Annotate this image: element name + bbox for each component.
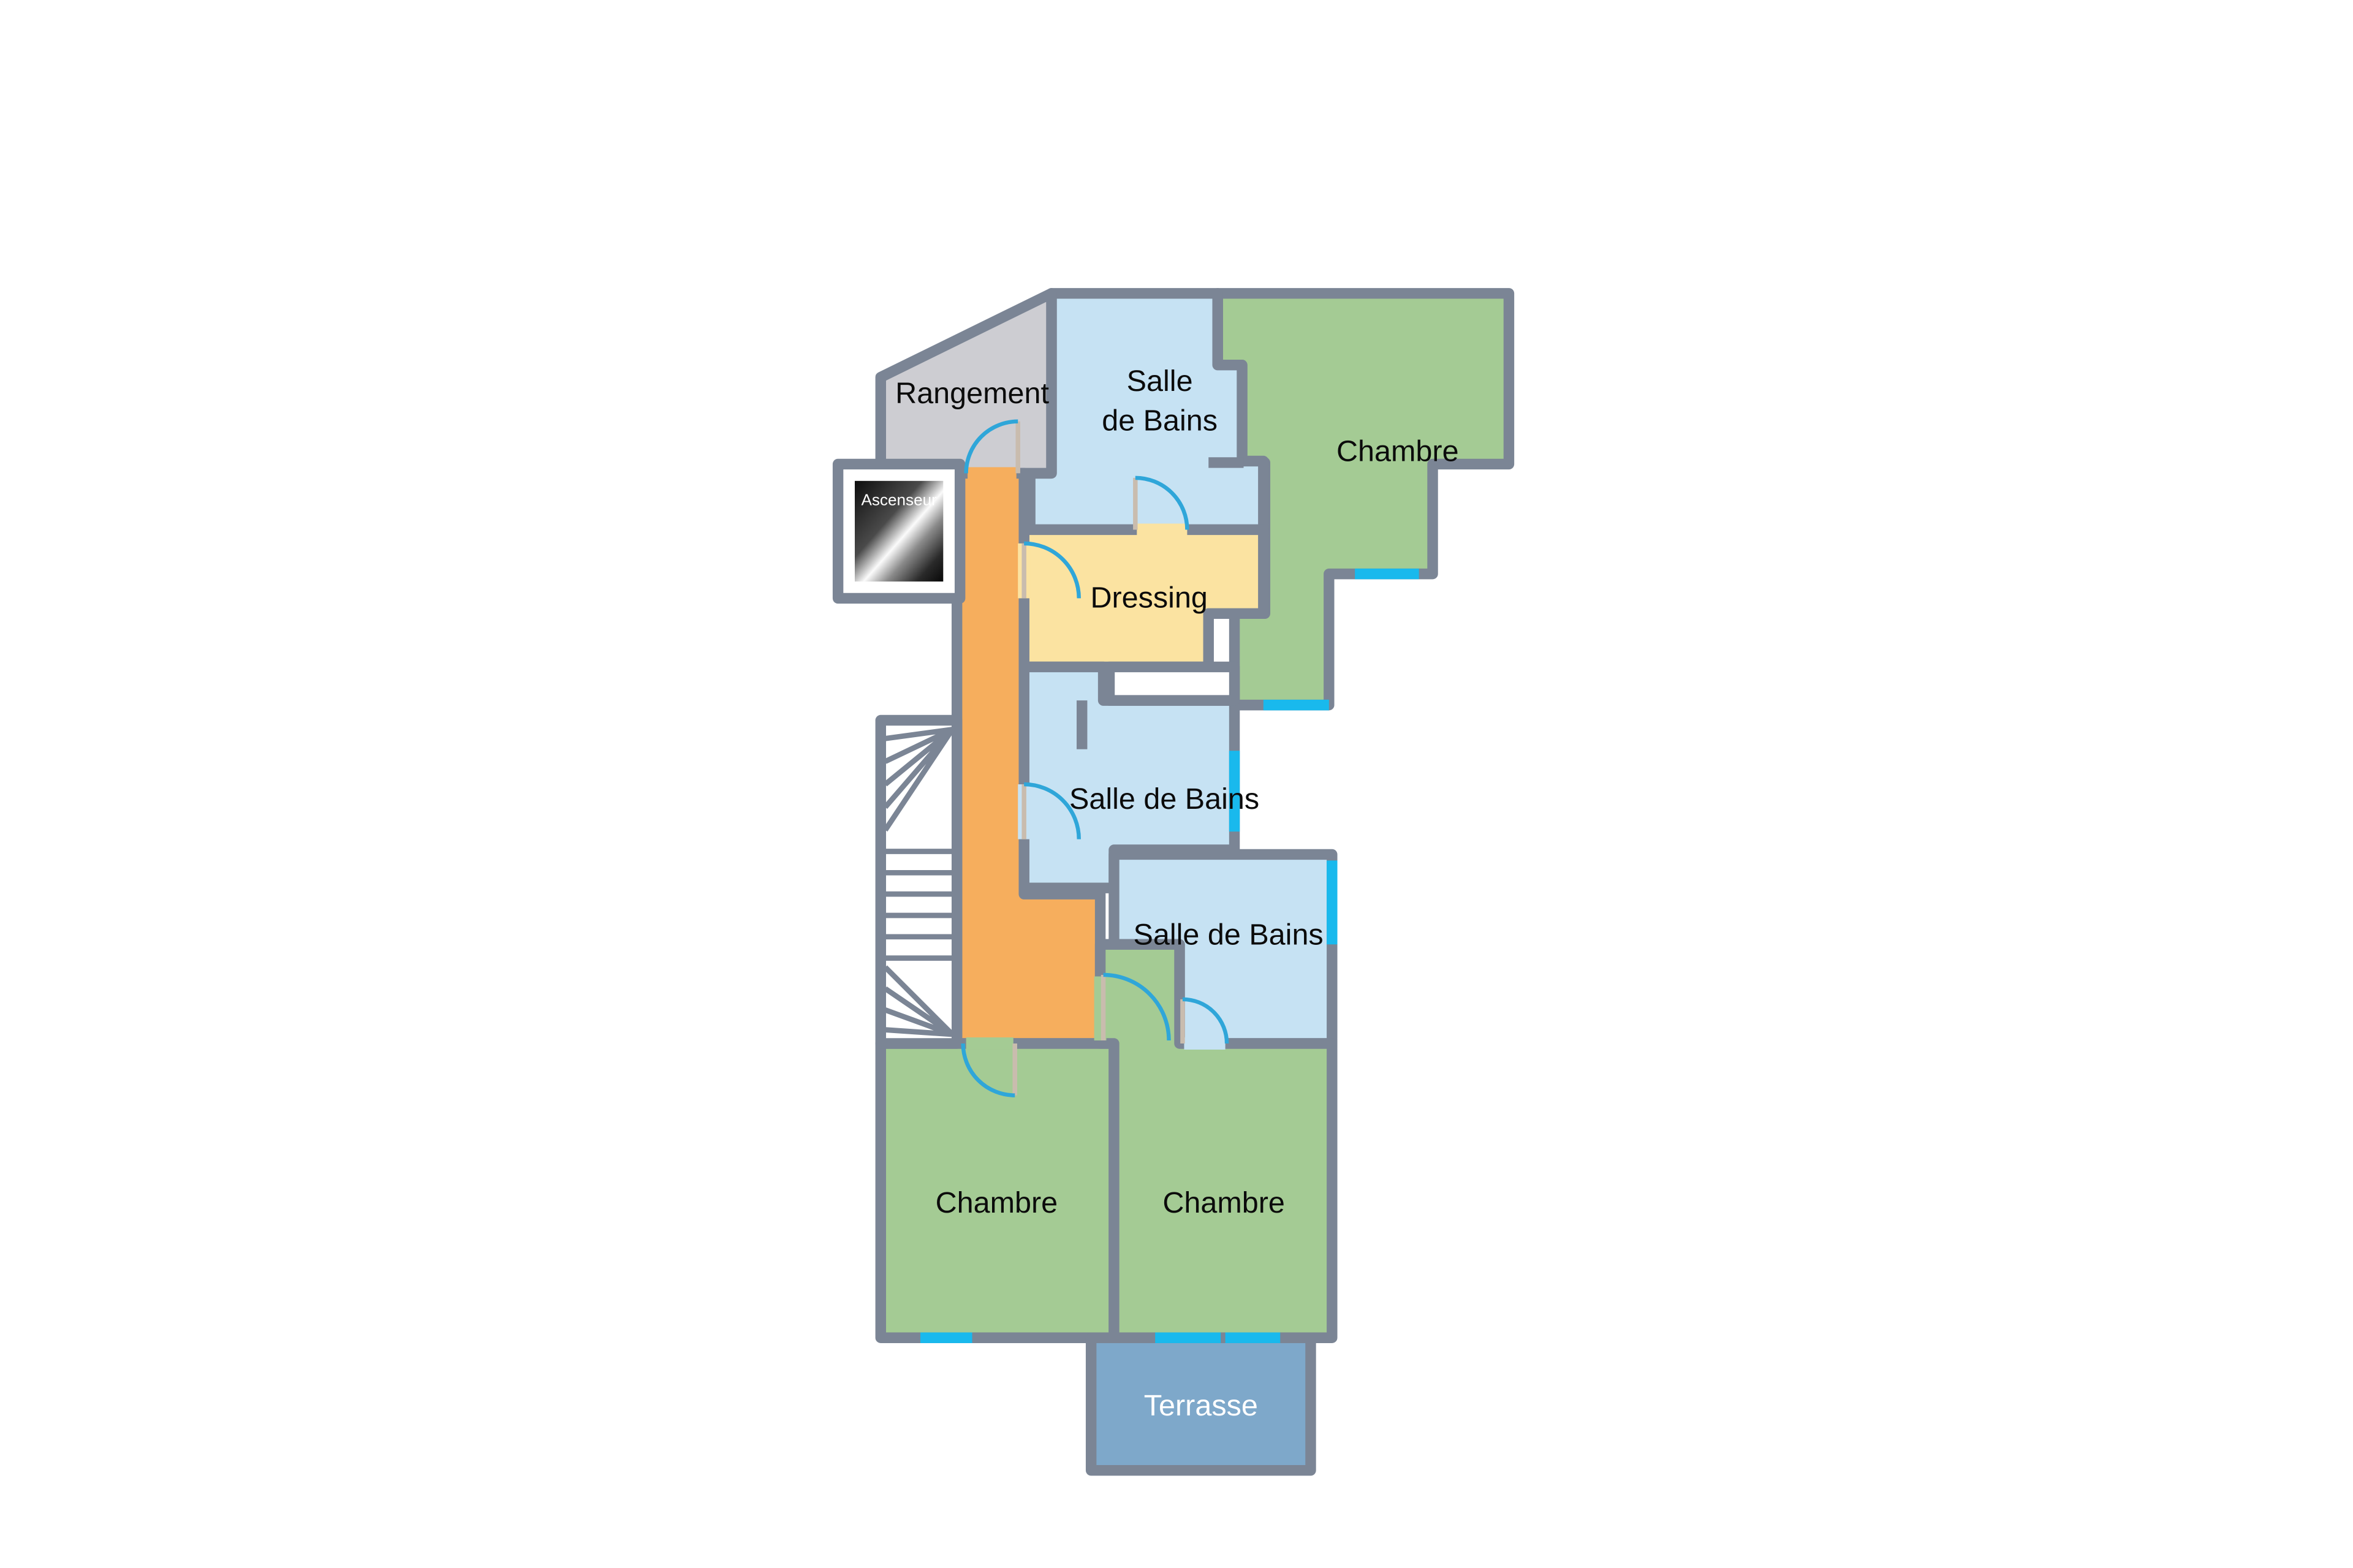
floor-plan-page: Ascenseur Rangement Salle de Bains Chamb… <box>0 0 2353 1568</box>
window-marker <box>1264 699 1329 710</box>
window-marker <box>920 1332 972 1343</box>
room-label-salle-de-bains-haut-line2: de Bains <box>1102 404 1218 437</box>
room-label-salle-de-bains-milieu: Salle de Bains <box>1069 782 1259 815</box>
room-label-dressing: Dressing <box>1090 581 1207 614</box>
floor-plan-svg: Ascenseur Rangement Salle de Bains Chamb… <box>0 4 2353 1565</box>
room-label-chambre-haut: Chambre <box>1336 434 1459 468</box>
room-label-salle-de-bains-haut-line1: Salle <box>1127 365 1193 398</box>
room-label-salle-de-bains-bas: Salle de Bains <box>1134 918 1324 951</box>
door-opening <box>966 1037 1014 1050</box>
door-opening <box>1137 523 1187 536</box>
room-label-terrasse: Terrasse <box>1144 1389 1258 1422</box>
window-marker <box>1327 860 1337 944</box>
window-marker <box>1155 1332 1221 1343</box>
room-label-rangement: Rangement <box>895 376 1049 409</box>
window-marker <box>1355 568 1419 578</box>
window-marker <box>1226 1332 1281 1343</box>
door-opening <box>968 467 1017 479</box>
room-label-chambre-droite: Chambre <box>1162 1186 1285 1219</box>
elevator-label: Ascenseur <box>861 490 937 509</box>
room-label-chambre-gauche: Chambre <box>936 1186 1058 1219</box>
door-opening <box>1184 1037 1225 1050</box>
light-well <box>1110 667 1235 700</box>
